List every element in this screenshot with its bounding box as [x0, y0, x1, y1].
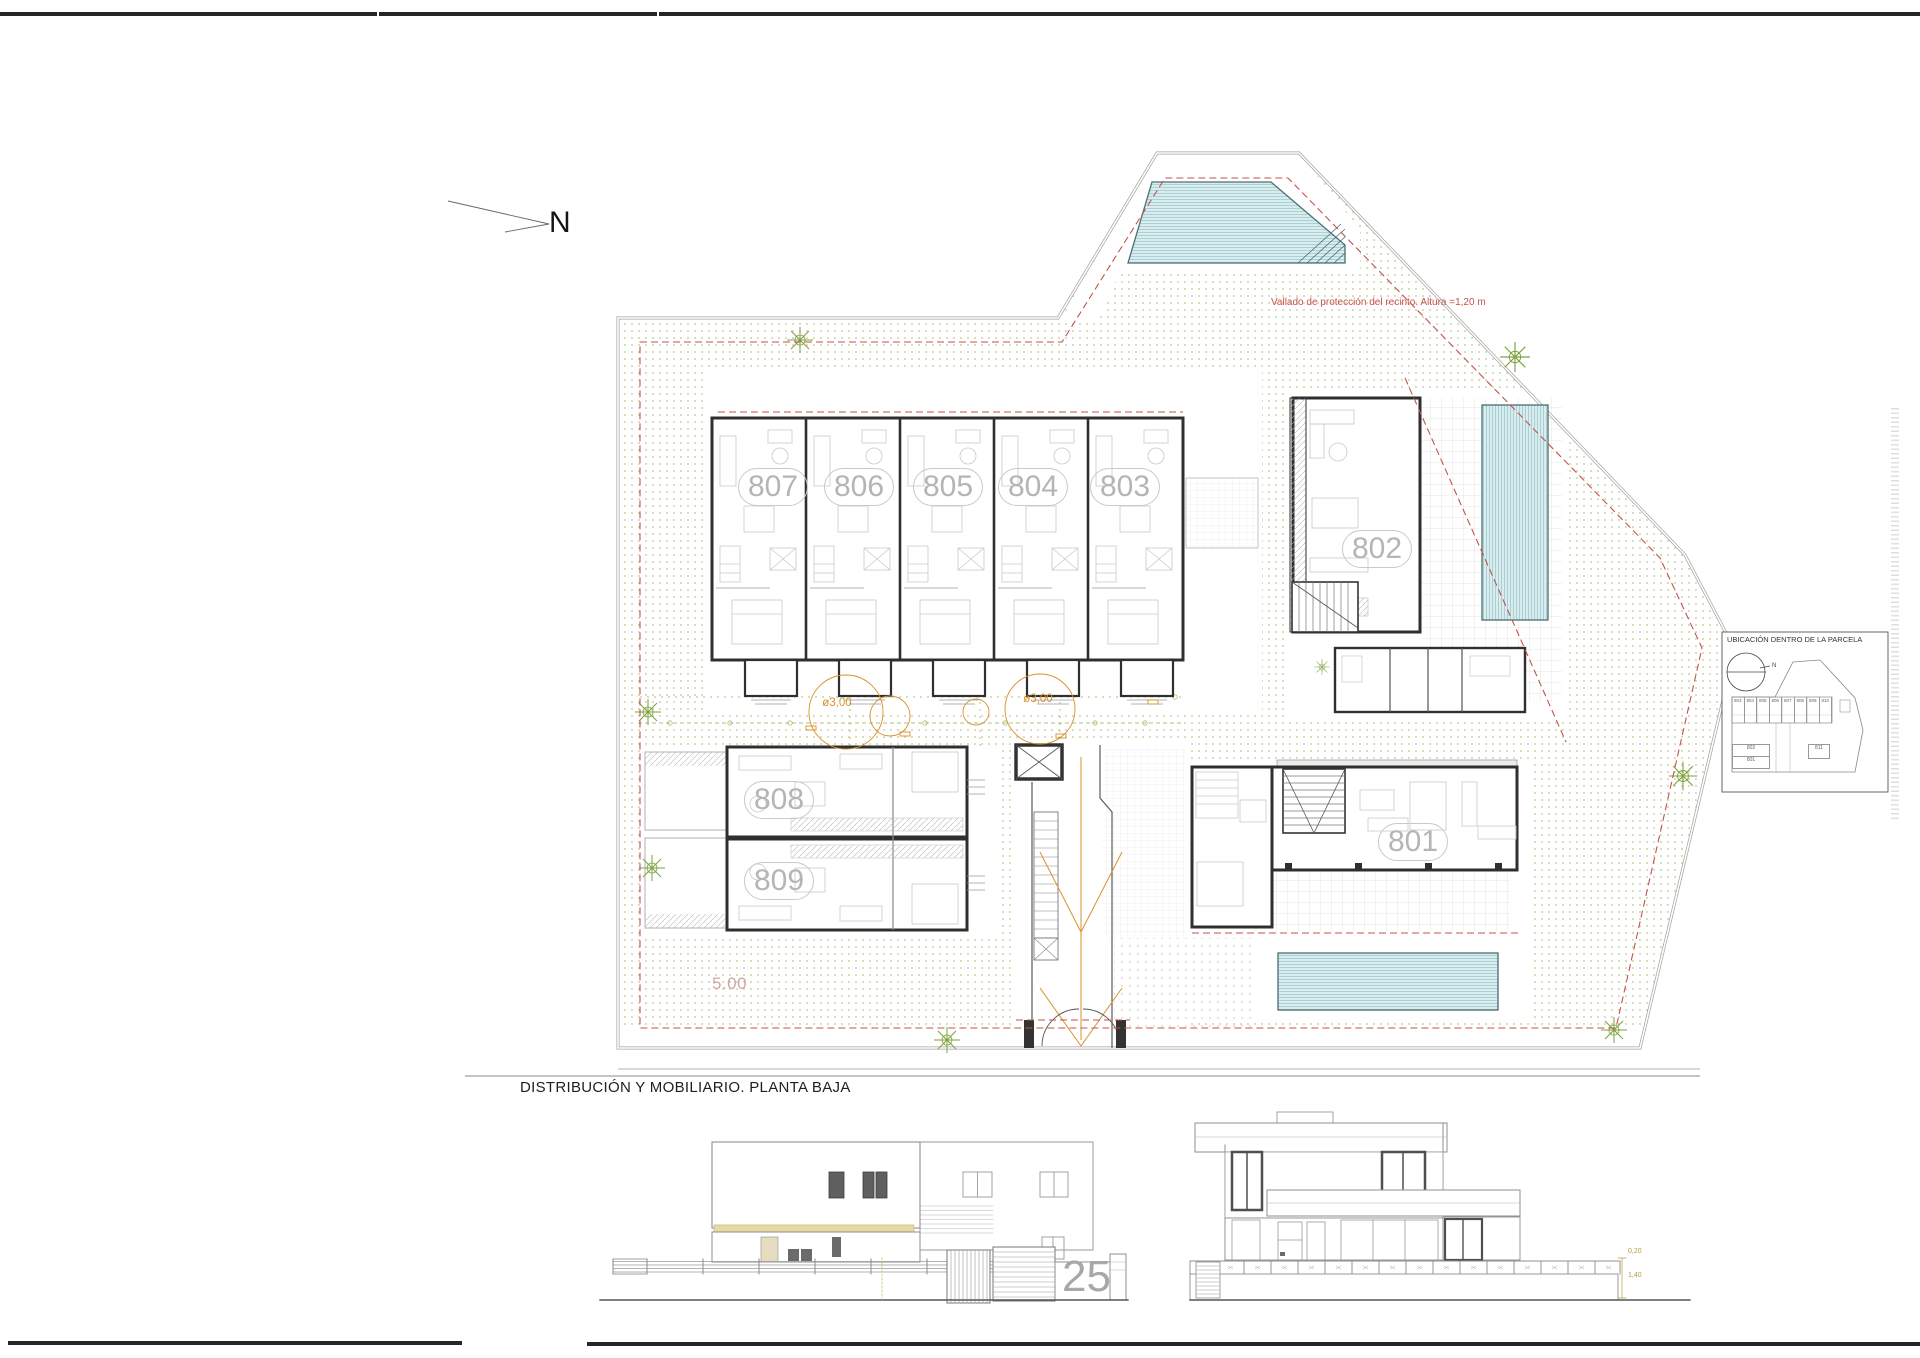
- legend-unit: 803: [1732, 697, 1745, 723]
- legend-unit-row: 803 804 805 806 807 808 809 810: [1732, 697, 1832, 723]
- tree-diameter-label: ø3,00: [822, 697, 851, 709]
- fence-height-dim-bottom: 1,40: [1628, 1272, 1642, 1279]
- unit-label-805: 805: [913, 468, 983, 506]
- legend-unit: 805: [1757, 697, 1770, 723]
- legend-unit: 806: [1770, 697, 1783, 723]
- setback-dimension: 5.00: [712, 974, 747, 994]
- legend-unit-811: 811: [1808, 744, 1830, 759]
- fine-print-vertical-text: [1891, 408, 1899, 820]
- fence-protection-note: Vallado de protección del recinto. Altur…: [1271, 297, 1486, 308]
- drawing-title: DISTRIBUCIÓN Y MOBILIARIO. PLANTA BAJA: [520, 1079, 851, 1096]
- north-arrow-label: N: [549, 206, 571, 240]
- legend-unit: 807: [1782, 697, 1795, 723]
- legend-unit-801: 801: [1732, 756, 1770, 769]
- legend-north-label: N: [1772, 663, 1776, 669]
- legend-unit: 804: [1745, 697, 1758, 723]
- legend-unit: 810: [1820, 697, 1833, 723]
- unit-label-801: 801: [1378, 823, 1448, 861]
- legend-unit: 809: [1807, 697, 1820, 723]
- unit-label-802: 802: [1342, 530, 1412, 568]
- fence-height-dim-top: 0,20: [1628, 1248, 1642, 1255]
- tree-diameter-label: ø3,00: [1023, 693, 1052, 705]
- site-plan-drawing: [0, 0, 1920, 1358]
- unit-label-806: 806: [824, 468, 894, 506]
- drawing-sheet: N Vallado de protección del recinto. Alt…: [0, 0, 1920, 1358]
- legend-unit: 808: [1795, 697, 1808, 723]
- unit-label-809: 809: [744, 862, 814, 900]
- legend-title: UBICACIÓN DENTRO DE LA PARCELA: [1727, 635, 1862, 644]
- unit-label-808: 808: [744, 781, 814, 819]
- unit-label-807: 807: [738, 468, 808, 506]
- unit-label-803: 803: [1090, 468, 1160, 506]
- unit-label-804: 804: [998, 468, 1068, 506]
- house-number: 25: [1062, 1252, 1111, 1302]
